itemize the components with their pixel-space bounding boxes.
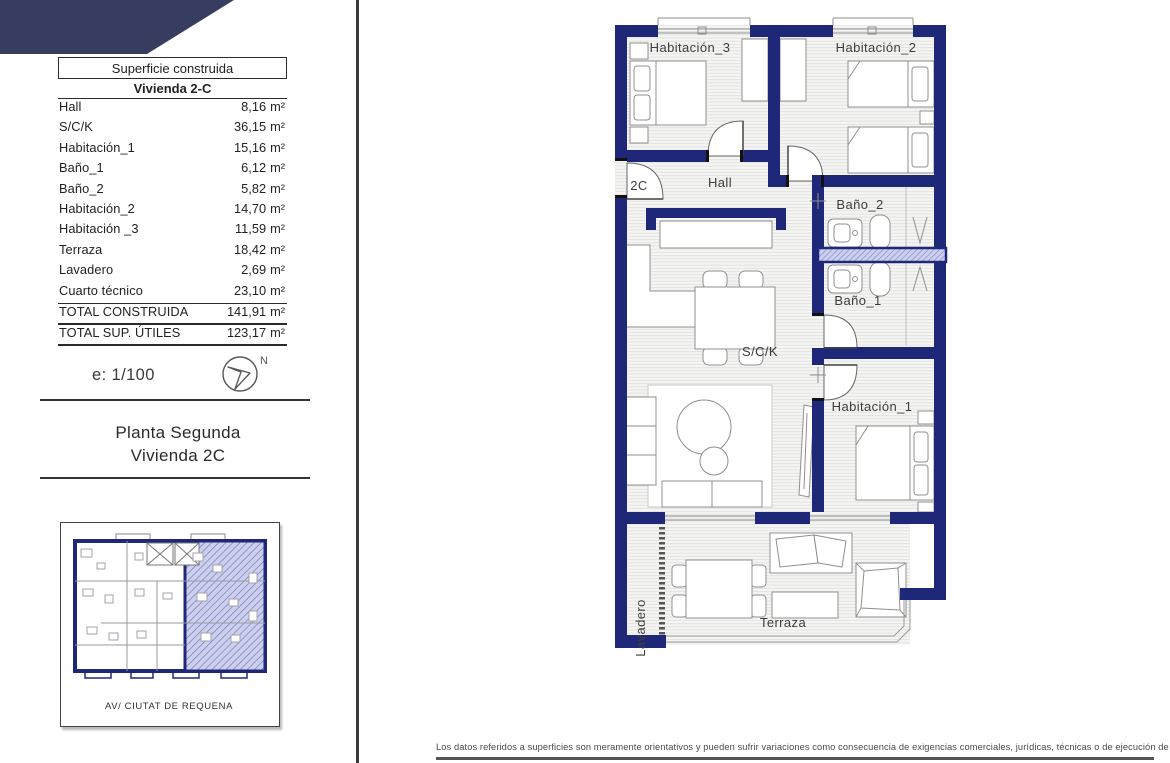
room-label-lavadero: Lavadero: [633, 599, 648, 656]
plan-title: Planta Segunda Vivienda 2C: [0, 421, 356, 467]
footer-rule: [436, 757, 1154, 760]
keyplan-box: AV/ CIUTAT DE REQUENA: [60, 522, 280, 727]
keyplan-drawing: AV/ CIUTAT DE REQUENA: [61, 523, 278, 725]
nightstand: [918, 411, 934, 424]
row-label: Cuarto técnico: [59, 283, 143, 298]
table-header: Superficie construida: [58, 57, 287, 79]
table-bottom-border: [58, 344, 287, 346]
room-label-sck: S/C/K: [742, 344, 778, 359]
pillow: [634, 66, 650, 91]
row-unit: m²: [270, 262, 285, 277]
row-value: 15,16: [234, 140, 266, 155]
row-label: Hall: [59, 99, 81, 114]
nightstand: [630, 43, 648, 59]
table-row: Terraza 18,42m²: [58, 242, 287, 262]
corner-decoration: [0, 0, 234, 54]
wardrobe: [780, 39, 806, 101]
row-label: TOTAL CONSTRUIDA: [59, 304, 188, 319]
pillow: [912, 133, 928, 167]
row-unit: m²: [270, 119, 285, 134]
row-value: 23,10: [234, 283, 266, 298]
room-label-bano-2: Baño_2: [836, 197, 883, 212]
row-unit: m²: [270, 160, 285, 175]
row-value: 8,16: [241, 99, 266, 114]
pillow: [914, 465, 928, 495]
row-value: 5,82: [241, 181, 266, 196]
room-label-bano-1: Baño_1: [834, 293, 881, 308]
table-row: Lavadero 2,69m²: [58, 262, 287, 282]
row-label: Habitación_1: [59, 140, 135, 155]
table-row: Hall 8,16m²: [58, 99, 287, 119]
row-unit: m²: [270, 221, 285, 236]
row-label: Lavadero: [59, 262, 113, 277]
row-value: 18,42: [234, 242, 266, 257]
table-row: S/C/K 36,15m²: [58, 119, 287, 139]
wardrobe: [742, 39, 768, 101]
row-unit: m²: [270, 304, 285, 319]
side-table: [700, 447, 728, 475]
pillow: [634, 95, 650, 120]
keyplan-caption: AV/ CIUTAT DE REQUENA: [105, 701, 233, 712]
row-value: 14,70: [234, 201, 266, 216]
row-value: 36,15: [234, 119, 266, 134]
row-value: 6,12: [241, 160, 266, 175]
toilet: [870, 215, 890, 249]
nightstand: [918, 502, 934, 512]
row-label: S/C/K: [59, 119, 93, 134]
coffee-table: [677, 400, 731, 454]
chair: [703, 347, 727, 365]
sofa-cushion: [776, 535, 818, 567]
row-unit: m²: [270, 99, 285, 114]
row-label: Terraza: [59, 242, 102, 257]
vertical-divider: [356, 0, 359, 763]
terrace-table: [686, 560, 752, 618]
plan-title-line2: Vivienda 2C: [0, 444, 356, 467]
divider-rule: [40, 399, 310, 401]
scale-label: e: 1/100: [92, 366, 155, 385]
table-subheader: Vivienda 2-C: [58, 79, 287, 99]
nightstand: [630, 127, 648, 143]
sofa: [622, 397, 656, 485]
room-label-habitacion-3: Habitación_3: [650, 40, 731, 55]
chair: [751, 595, 766, 617]
chair: [739, 271, 763, 289]
room-label-habitacion-1: Habitación_1: [832, 399, 913, 414]
chair: [703, 271, 727, 289]
chair: [672, 595, 687, 617]
row-label: TOTAL SUP. ÚTILES: [59, 325, 180, 340]
disclaimer-text: Los datos referidos a superficies son me…: [436, 742, 1161, 752]
row-value: 11,59: [235, 221, 266, 236]
table-row: Cuarto técnico 23,10m²: [58, 283, 287, 303]
surface-area-table: Superficie construida Vivienda 2-C Hall …: [58, 57, 287, 346]
row-value: 123,17: [227, 325, 266, 340]
row-unit: m²: [270, 242, 285, 257]
plan-title-line1: Planta Segunda: [0, 421, 356, 444]
toilet: [870, 262, 890, 296]
row-unit: m²: [270, 140, 285, 155]
table-row-total-construida: TOTAL CONSTRUIDA 141,91m²: [58, 303, 287, 323]
row-label: Habitación_2: [59, 201, 135, 216]
dining-table: [695, 287, 775, 349]
north-letter: N: [260, 355, 268, 367]
chair: [672, 565, 687, 587]
unit-tag-2c: 2C: [630, 178, 647, 193]
nightstand: [920, 111, 934, 124]
row-unit: m²: [270, 283, 285, 298]
table-row: Habitación _3 11,59m²: [58, 221, 287, 241]
row-label: Baño_1: [59, 160, 104, 175]
floorplan-drawing: Habitación_3 Habitación_2 Hall 2C Baño_2…: [608, 15, 948, 660]
divider-rule: [40, 477, 310, 479]
hatched-wall: [818, 248, 946, 262]
row-unit: m²: [270, 201, 285, 216]
table-row: Baño_2 5,82m²: [58, 181, 287, 201]
table-row: Habitación_2 14,70m²: [58, 201, 287, 221]
row-unit: m²: [270, 325, 285, 340]
hall-counter: [660, 221, 772, 248]
row-label: Habitación _3: [59, 221, 139, 236]
pillow: [912, 67, 928, 101]
room-label-terraza: Terraza: [760, 615, 807, 630]
room-label-hall: Hall: [708, 175, 732, 190]
row-label: Baño_2: [59, 181, 104, 196]
sofa-cushion: [814, 535, 846, 567]
row-unit: m²: [270, 181, 285, 196]
pillow: [914, 432, 928, 462]
row-value: 141,91: [227, 304, 266, 319]
table-row-total-utiles: TOTAL SUP. ÚTILES 123,17m²: [58, 323, 287, 343]
room-label-habitacion-2: Habitación_2: [836, 40, 917, 55]
table-row: Habitación_1 15,16m²: [58, 140, 287, 160]
row-value: 2,69: [241, 262, 266, 277]
north-arrow-icon: N: [216, 350, 276, 398]
chair: [751, 565, 766, 587]
table-row: Baño_1 6,12m²: [58, 160, 287, 180]
